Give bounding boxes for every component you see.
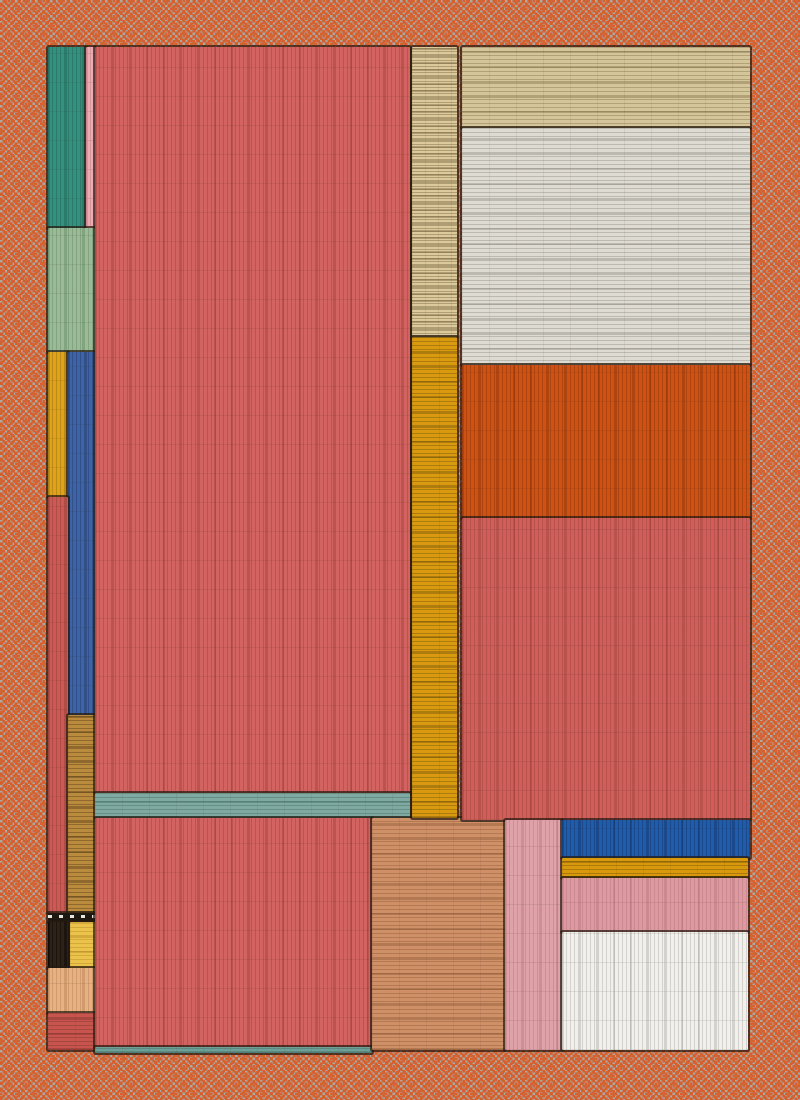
blue-band-bottom-right xyxy=(562,820,750,858)
beige-band-top-right xyxy=(462,47,750,128)
bottom-tan-block xyxy=(372,818,505,1050)
peach-block-left xyxy=(48,968,95,1013)
artwork-canvas xyxy=(0,0,800,1100)
bottom-teal-line xyxy=(95,1047,372,1053)
teal-block-top-left xyxy=(48,47,86,228)
gold-sliver-left xyxy=(48,352,68,497)
teal-strip-middle xyxy=(95,793,410,818)
white-block-bottom-right xyxy=(562,932,748,1050)
orange-region-right xyxy=(462,365,750,518)
bottom-red-block xyxy=(95,818,372,1047)
pink-sliver-top-left xyxy=(86,47,95,228)
sage-block-left xyxy=(48,228,95,352)
gold-strip-middle xyxy=(412,337,457,818)
pink-column-bottom xyxy=(505,820,562,1050)
yellow-block-left xyxy=(70,922,95,968)
red-sliver-left xyxy=(48,497,68,913)
pink-band-bottom-right xyxy=(562,878,748,932)
red-block-bottom-left xyxy=(48,1013,95,1050)
right-red-block xyxy=(462,518,750,820)
white-region-top-right xyxy=(462,128,750,365)
tan-strip-top-middle xyxy=(412,47,457,337)
dark-brown-block-left xyxy=(48,922,70,968)
black-band-left xyxy=(48,913,95,922)
brown-sliver-left xyxy=(68,715,95,913)
main-red-block xyxy=(95,47,410,793)
blue-sliver-left xyxy=(68,352,95,715)
gold-band-bottom-right xyxy=(562,858,748,878)
